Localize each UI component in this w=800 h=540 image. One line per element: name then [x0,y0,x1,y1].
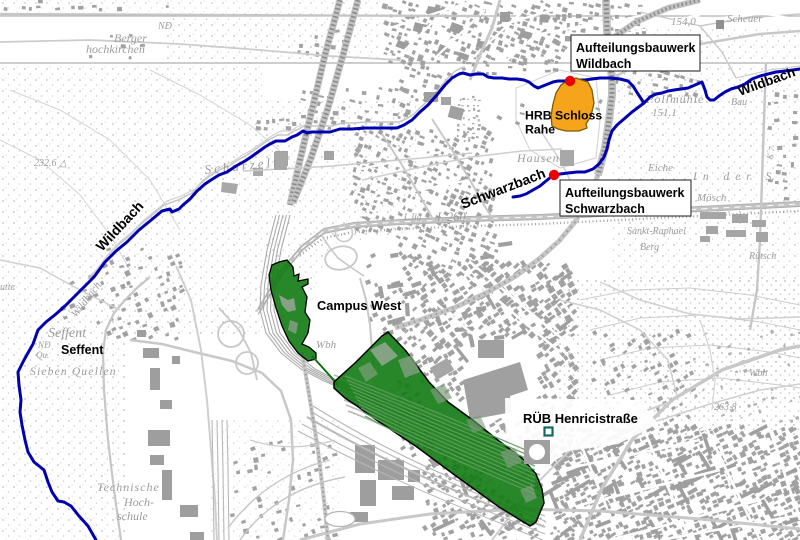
svg-text:Wbh: Wbh [316,339,337,351]
svg-text:L 260: L 260 [436,210,466,224]
svg-text:Eiche: Eiche [647,162,673,174]
svg-text:Wbh: Wbh [749,368,767,379]
svg-text:232.6 △: 232.6 △ [34,158,67,169]
svg-text:Schwarzbach: Schwarzbach [565,202,645,216]
svg-text:Berg: Berg [640,242,659,253]
svg-text:Campus West: Campus West [317,298,402,313]
svg-text:151.1: 151.1 [652,107,677,119]
svg-text:154,0: 154,0 [671,16,696,28]
svg-text:Aufteilungsbauwerk: Aufteilungsbauwerk [576,41,696,55]
svg-text:HRB Schloss: HRB Schloss [525,109,602,123]
svg-text:Sieben Quellen: Sieben Quellen [30,366,117,378]
svg-text:ND: ND [157,21,173,32]
svg-text:Mösch: Mösch [696,192,727,204]
svg-text:Sankt-Raphael: Sankt-Raphael [627,226,686,237]
svg-text:schule: schule [117,509,148,523]
svg-text:ND: ND [37,340,51,350]
svg-text:Hoch-: Hoch- [123,495,154,509]
svg-text:Rahe: Rahe [525,123,555,137]
svg-text:Qu.: Qu. [36,350,49,360]
svg-text:L.Ilg: L.Ilg [403,212,422,222]
svg-text:Scheuer: Scheuer [727,13,763,25]
svg-text:Aufteilungsbauwerk: Aufteilungsbauwerk [565,186,685,200]
svg-text:RÜB Henricistraße: RÜB Henricistraße [523,411,638,426]
svg-text:263.8: 263.8 [714,402,737,413]
svg-text:Hausen: Hausen [516,151,560,165]
svg-text:Wildbach: Wildbach [576,57,631,71]
svg-text:Bau: Bau [731,97,747,108]
svg-text:Seffent: Seffent [48,326,87,341]
svg-text:Seffent: Seffent [61,343,104,357]
svg-text:Technische: Technische [97,480,160,494]
svg-text:In der S: In der S [692,171,777,183]
svg-text:utte: utte [0,282,16,293]
svg-text:hochkirchen: hochkirchen [86,42,145,56]
svg-text:Rütsch: Rütsch [748,251,776,262]
